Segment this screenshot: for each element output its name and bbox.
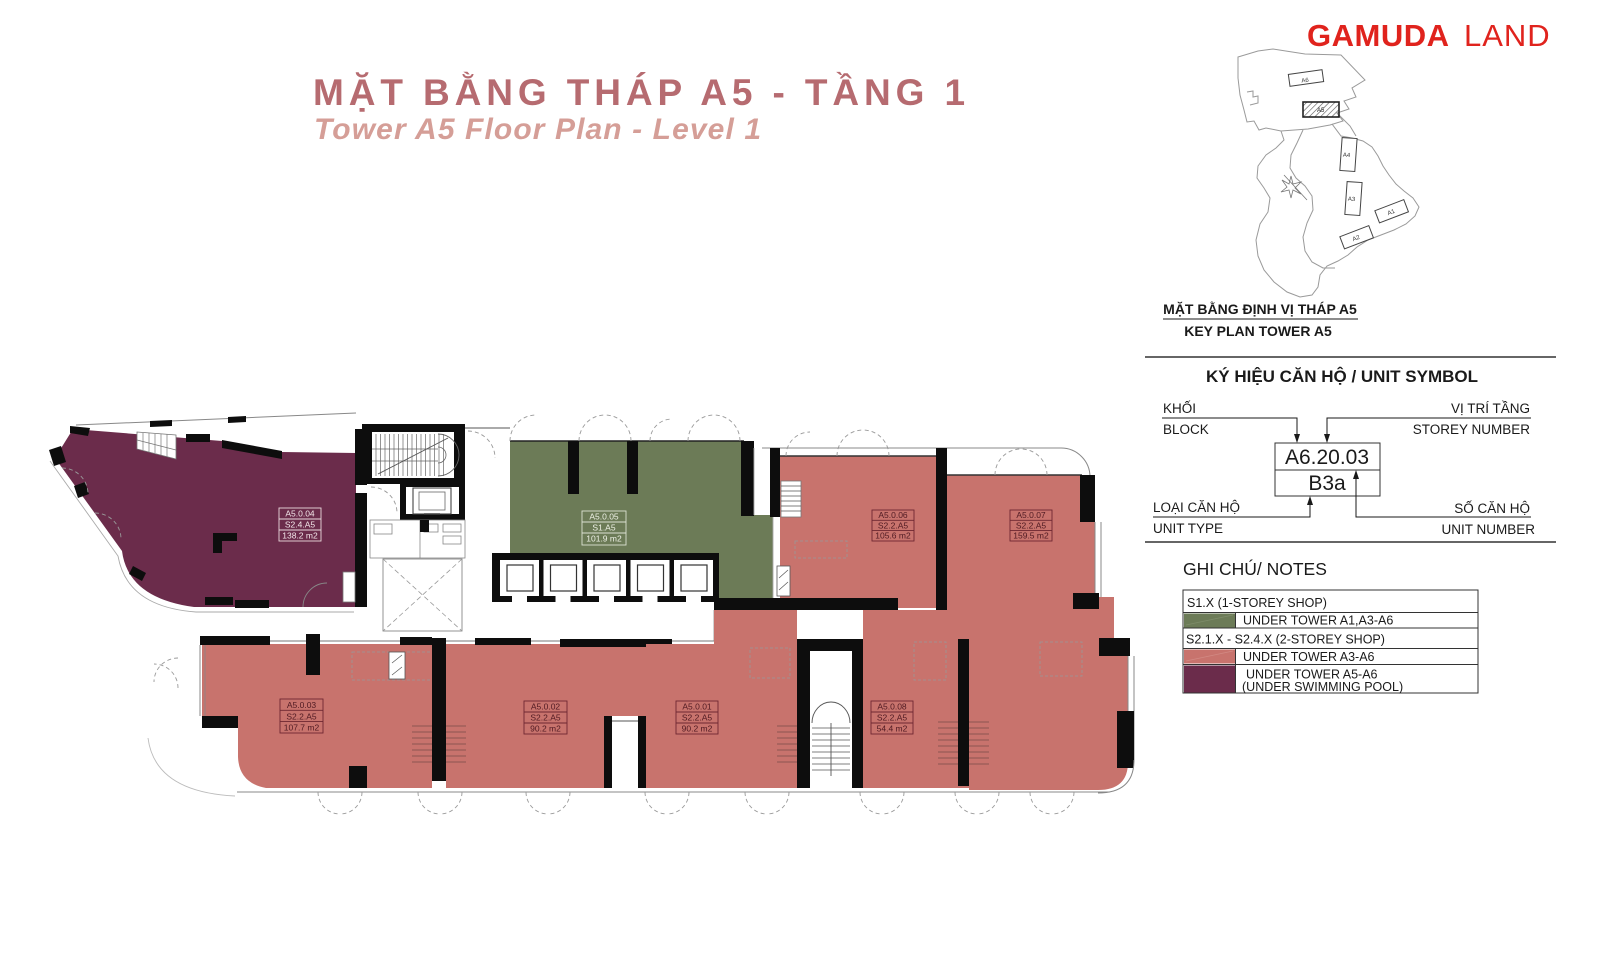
svg-text:S2.2.A5: S2.2.A5 — [878, 520, 909, 530]
svg-text:MẶT BẰNG THÁP A5 - TẦNG 1: MẶT BẰNG THÁP A5 - TẦNG 1 — [313, 72, 970, 113]
svg-text:B3a: B3a — [1308, 472, 1346, 495]
svg-text:(UNDER SWIMMING POOL): (UNDER SWIMMING POOL) — [1242, 680, 1403, 694]
svg-text:54.4 m2: 54.4 m2 — [877, 724, 908, 734]
svg-text:105.6 m2: 105.6 m2 — [875, 531, 911, 541]
svg-text:KEY PLAN TOWER A5: KEY PLAN TOWER A5 — [1184, 323, 1332, 339]
svg-text:A5.0.06: A5.0.06 — [878, 510, 908, 520]
svg-text:A5.0.04: A5.0.04 — [285, 509, 315, 519]
svg-text:A5.0.01: A5.0.01 — [682, 702, 712, 712]
svg-text:S1.A5: S1.A5 — [592, 523, 615, 533]
svg-text:A5.0.05: A5.0.05 — [589, 512, 619, 522]
svg-text:S2.2.A5: S2.2.A5 — [1016, 520, 1047, 530]
svg-text:GAMUDA: GAMUDA — [1307, 18, 1450, 53]
svg-text:159.5 m2: 159.5 m2 — [1013, 531, 1049, 541]
svg-text:UNDER TOWER A1,A3-A6: UNDER TOWER A1,A3-A6 — [1243, 614, 1393, 628]
svg-text:A5.0.07: A5.0.07 — [1016, 510, 1046, 520]
svg-text:90.2 m2: 90.2 m2 — [530, 724, 561, 734]
svg-text:STOREY NUMBER: STOREY NUMBER — [1413, 422, 1531, 437]
svg-text:UNIT TYPE: UNIT TYPE — [1153, 521, 1223, 536]
svg-text:Tower A5 Floor Plan - Level 1: Tower A5 Floor Plan - Level 1 — [314, 113, 762, 146]
svg-text:107.7 m2: 107.7 m2 — [284, 723, 320, 733]
svg-text:KHỐI: KHỐI — [1163, 401, 1196, 416]
svg-text:S2.4.A5: S2.4.A5 — [285, 520, 316, 530]
svg-text:LOẠI CĂN HỘ: LOẠI CĂN HỘ — [1153, 500, 1240, 515]
svg-text:SỐ CĂN HỘ: SỐ CĂN HỘ — [1454, 501, 1530, 516]
svg-text:S2.2.A5: S2.2.A5 — [877, 713, 908, 723]
svg-text:90.2 m2: 90.2 m2 — [682, 724, 713, 734]
svg-text:UNDER TOWER A3-A6: UNDER TOWER A3-A6 — [1243, 650, 1375, 664]
svg-text:S2.2.A5: S2.2.A5 — [682, 713, 713, 723]
svg-text:S2.2.A5: S2.2.A5 — [530, 713, 561, 723]
svg-text:A5.0.03: A5.0.03 — [287, 700, 317, 710]
svg-text:A4: A4 — [1343, 153, 1351, 160]
svg-text:VỊ TRÍ TẦNG: VỊ TRÍ TẦNG — [1451, 401, 1530, 416]
svg-text:A5.0.08: A5.0.08 — [877, 702, 907, 712]
svg-text:A5: A5 — [1317, 108, 1325, 114]
svg-text:KÝ HIỆU CĂN HỘ / UNIT SYMBOL: KÝ HIỆU CĂN HỘ / UNIT SYMBOL — [1206, 367, 1478, 386]
svg-text:LAND: LAND — [1464, 18, 1551, 53]
svg-text:S2.2.A5: S2.2.A5 — [286, 711, 317, 721]
svg-text:A5.0.02: A5.0.02 — [531, 702, 561, 712]
svg-text:101.9 m2: 101.9 m2 — [586, 534, 622, 544]
svg-text:UNIT NUMBER: UNIT NUMBER — [1441, 522, 1535, 537]
svg-text:138.2 m2: 138.2 m2 — [282, 531, 318, 541]
svg-text:MẶT BẰNG ĐỊNH VỊ THÁP A5: MẶT BẰNG ĐỊNH VỊ THÁP A5 — [1163, 300, 1357, 317]
svg-text:BLOCK: BLOCK — [1163, 422, 1209, 437]
svg-text:A6.20.03: A6.20.03 — [1285, 446, 1369, 469]
svg-text:S2.1.X - S2.4.X (2-STOREY SHOP: S2.1.X - S2.4.X (2-STOREY SHOP) — [1186, 633, 1385, 647]
svg-text:S1.X (1-STOREY SHOP): S1.X (1-STOREY SHOP) — [1187, 596, 1327, 610]
svg-text:GHI CHÚ/ NOTES: GHI CHÚ/ NOTES — [1183, 558, 1327, 579]
svg-text:A3: A3 — [1348, 197, 1356, 204]
